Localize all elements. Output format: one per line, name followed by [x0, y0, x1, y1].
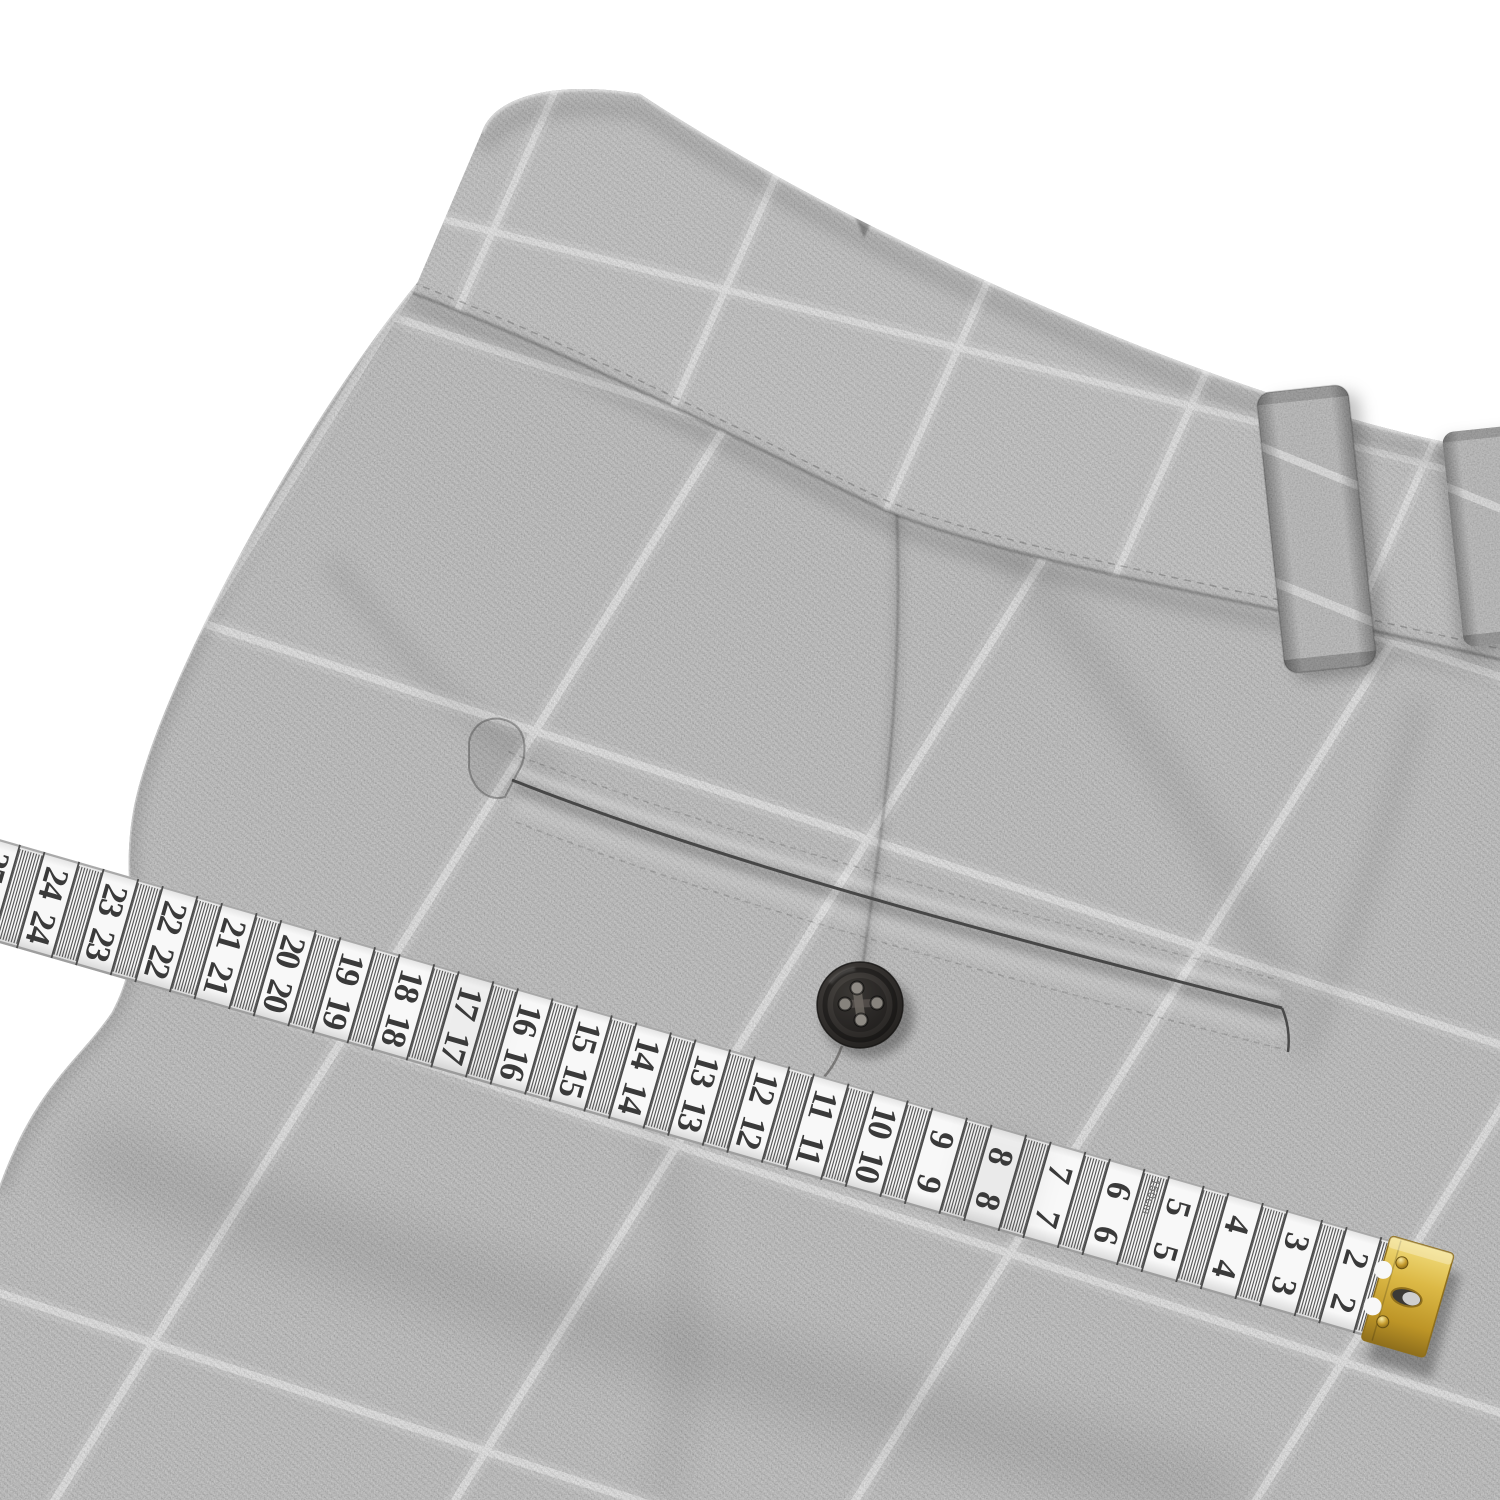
button-hole — [855, 1014, 868, 1027]
button-hole — [871, 997, 884, 1010]
scene-svg: 2525242423232222212120201919181817171616… — [0, 0, 1500, 1500]
button-hole — [851, 982, 864, 995]
product-photo: 2525242423232222212120201919181817171616… — [0, 0, 1500, 1500]
button-hole — [839, 998, 852, 1011]
